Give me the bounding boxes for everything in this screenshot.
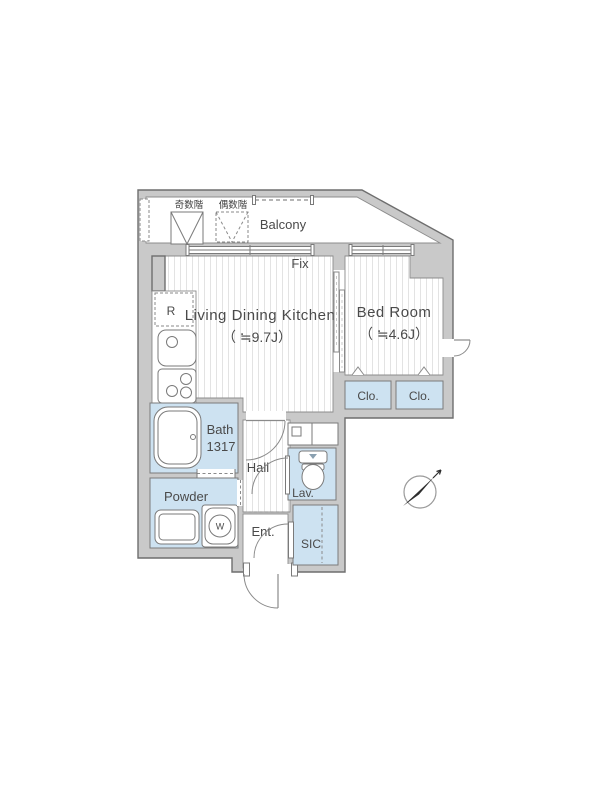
closet-left-label: Clo. — [357, 389, 378, 403]
odd-floor-label: 奇数階 — [175, 199, 204, 211]
even-floor-label: 偶数階 — [219, 199, 248, 211]
floor-plan: 奇数階 偶数階 Balcony R Living Dining Kitchen … — [0, 0, 600, 800]
balcony-partition — [140, 199, 149, 241]
refrigerator-label: R — [167, 304, 176, 318]
washing-machine-icon: W — [202, 505, 238, 547]
bedroom-door-icon — [442, 339, 470, 357]
closet-right-label: Clo. — [409, 389, 430, 403]
vanity-sink-icon — [155, 510, 199, 544]
compass-icon — [403, 470, 441, 508]
window-bedroom-icon — [349, 245, 414, 256]
fix-window-label: Fix — [291, 256, 309, 271]
toilet-icon — [299, 451, 327, 490]
kitchen-sink-icon — [158, 330, 196, 366]
floor-plan-drawing: 奇数階 偶数階 Balcony R Living Dining Kitchen … — [0, 0, 600, 800]
bath-size: 1317 — [207, 439, 236, 454]
room-bath: Bath 1317 — [150, 403, 238, 478]
balcony-label: Balcony — [260, 217, 307, 232]
bedroom-size: （ ≒4.6J） — [359, 326, 429, 342]
powder-room-label-1: Powder — [164, 489, 209, 504]
wall-chunk — [152, 256, 165, 291]
window-ldk-icon — [186, 245, 314, 256]
room-hall: Hall — [243, 411, 290, 512]
washer-label: W — [216, 522, 225, 532]
bath-door-icon — [197, 469, 235, 478]
sic-label: SIC — [301, 537, 321, 551]
closet-left: Clo. — [345, 381, 391, 409]
ldk-name: Living Dining Kitchen — [185, 307, 336, 324]
hall-label: Hall — [247, 460, 270, 475]
bathtub-icon — [154, 407, 201, 468]
sliding-door-icon — [334, 270, 345, 372]
lav-shelf-icon — [288, 423, 338, 445]
bath-name: Bath — [207, 422, 234, 437]
front-door-icon — [244, 563, 298, 608]
stove-icon — [158, 369, 196, 403]
balcony: 奇数階 偶数階 Balcony — [140, 196, 440, 245]
closet-right: Clo. — [396, 381, 443, 409]
even-floor-washer-pad-icon — [216, 212, 248, 242]
ldk-size: （ ≒9.7J） — [222, 329, 292, 345]
lavatory-label: Lav. — [292, 486, 314, 500]
odd-floor-washer-pad-icon — [171, 212, 203, 244]
room-powder: Powder Room W — [150, 478, 244, 548]
bedroom-name: Bed Room — [357, 304, 432, 321]
entrance-label: Ent. — [251, 524, 274, 539]
